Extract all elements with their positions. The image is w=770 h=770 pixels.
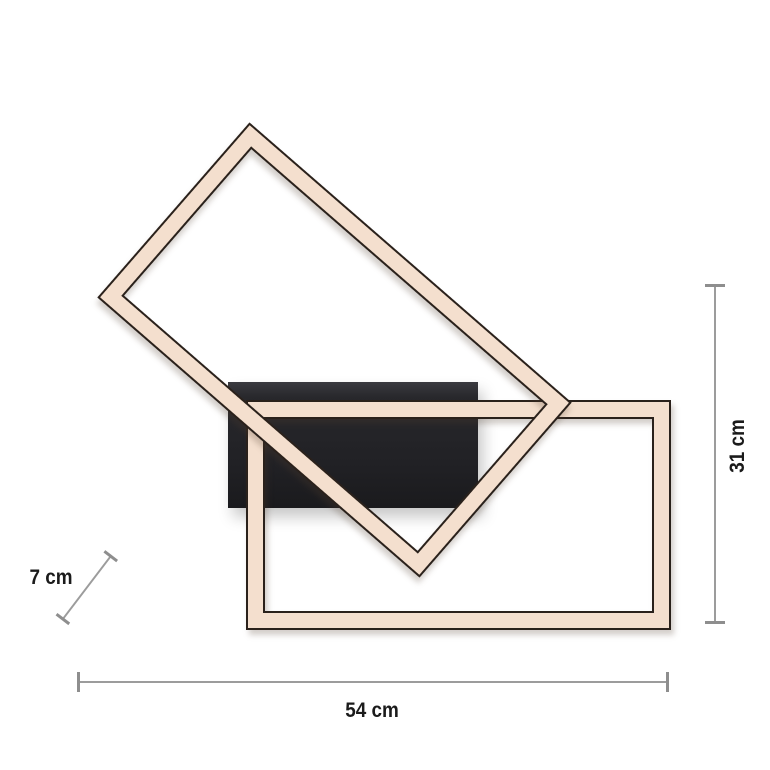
height-dimension-tick-top (705, 284, 725, 287)
width-dimension-line (78, 681, 667, 683)
width-dimension-tick-right (666, 672, 669, 692)
product-dimension-diagram: 54 cm 31 cm 7 cm (0, 0, 770, 770)
depth-dimension-tick-top (103, 550, 118, 562)
width-dimension-tick-left (77, 672, 80, 692)
height-dimension-line (714, 285, 716, 622)
depth-dimension-tick-bottom (56, 613, 71, 625)
width-dimension-label: 54 cm (345, 699, 399, 723)
height-dimension-tick-bottom (705, 621, 725, 624)
height-dimension-label: 31 cm (726, 419, 750, 473)
depth-dimension-label: 7 cm (29, 566, 72, 590)
